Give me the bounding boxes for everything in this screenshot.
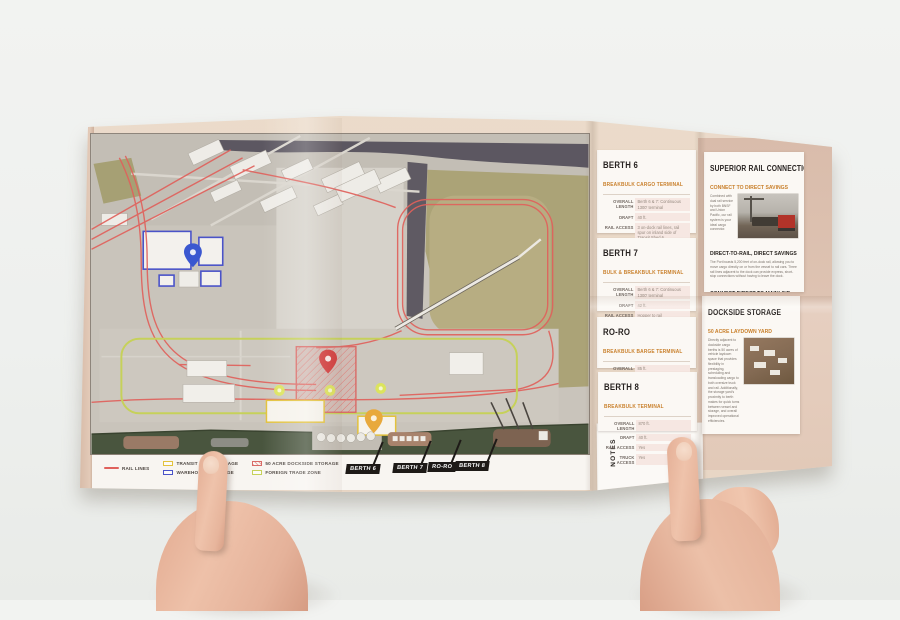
outline-box-swatch: [163, 470, 173, 475]
flag-berth6: BERTH 6: [345, 464, 380, 474]
spec-label: DRAFT: [604, 434, 634, 442]
panel-subtitle: CONNECT TO DIRECT SAVINGS: [710, 185, 788, 191]
spec-value: 870 ft.: [636, 420, 691, 431]
spec-label: RAIL ACCESS: [604, 444, 634, 452]
berth7-card: BERTH 7 BULK & BREAKBULK TERMINAL OVERAL…: [597, 238, 696, 311]
card-title: RO-RO: [603, 327, 630, 338]
panel-intro-text: Combined with dual rail service by both …: [710, 194, 734, 238]
outline-box-swatch: [252, 470, 262, 475]
right-thumbnail: [676, 442, 692, 461]
card-subtitle: BREAKBULK BARGE TERMINAL: [603, 349, 682, 355]
dockside-storage-card: DOCKSIDE STORAGE 50 ACRE LAYDOWN YARD Di…: [702, 296, 800, 434]
spec-value: 42 ft.: [635, 301, 690, 309]
card-subtitle: BULK & BREAKBULK TERMINAL: [603, 270, 683, 276]
outline-box-swatch: [163, 461, 173, 466]
hatched-box-swatch: [252, 461, 262, 466]
section-heading: CONNECT DIRECT TO MAINLINE: [710, 291, 790, 292]
spec-value: Berth 6 & 7: Continuous 1300' terminal: [635, 198, 690, 211]
spec-value: 40 ft.: [635, 213, 690, 221]
card-title: BERTH 6: [603, 160, 638, 171]
flag-roro: RO-RO: [427, 462, 457, 472]
card-title: BERTH 8: [604, 382, 639, 393]
train-at-dock-photo: [738, 194, 798, 238]
section-body: The Port boasts 5,200 feet of on-dock ra…: [710, 260, 798, 279]
left-thumbnail: [203, 456, 219, 474]
spec-label: TRUCK ACCESS: [604, 454, 634, 465]
laydown-yard-aerial-photo: [744, 338, 794, 384]
panel-intro-text: Directly adjacent to dockside cargo bert…: [708, 338, 740, 424]
card-subtitle: BREAKBULK CARGO TERMINAL: [603, 182, 683, 188]
rail-connections-card: SUPERIOR RAIL CONNECTIONS CONNECT TO DIR…: [704, 152, 804, 292]
card-subtitle: BREAKBULK TERMINAL: [604, 404, 664, 410]
legend-item-dockside-storage: 50 ACRE DOCKSIDE STORAGE: [252, 461, 338, 466]
port-terminal-satellite-map: [90, 133, 590, 455]
legend-label: RAIL LINES: [122, 466, 149, 471]
legend-item-foreign-trade-zone: FOREIGN TRADE ZONE: [252, 470, 338, 475]
legend-item-rail-lines: RAIL LINES: [104, 466, 149, 471]
berth8-card: BERTH 8 BREAKBULK TERMINAL OVERALL LENGT…: [598, 372, 697, 431]
section-heading: DIRECT-TO-RAIL, DIRECT SAVINGS: [710, 251, 797, 257]
panel-title: SUPERIOR RAIL CONNECTIONS: [710, 164, 804, 173]
card-title: BERTH 7: [603, 248, 638, 259]
map-legend-strip: RAIL LINES TRANSIT SHED STORAGE WAREHOUS…: [92, 455, 590, 490]
roro-card: RO-RO BREAKBULK BARGE TERMINAL OVERALL L…: [597, 317, 696, 368]
rail-line-swatch: [104, 467, 119, 469]
flag-berth7: BERTH 7: [392, 463, 427, 473]
legend-label: 50 ACRE DOCKSIDE STORAGE: [265, 461, 338, 466]
spec-label: DRAFT: [603, 213, 633, 221]
panel-subtitle: 50 ACRE LAYDOWN YARD: [708, 329, 772, 335]
spec-value: Berth 6 & 7: Continuous 1300' terminal: [635, 286, 690, 299]
spec-label: OVERALL LENGTH: [603, 198, 633, 211]
flag-berth8: BERTH 8: [454, 461, 489, 471]
berth6-card: BERTH 6 BREAKBULK CARGO TERMINAL OVERALL…: [597, 150, 696, 233]
spec-label: OVERALL LENGTH: [604, 420, 634, 431]
panel-title: DOCKSIDE STORAGE: [708, 308, 781, 317]
legend-label: FOREIGN TRADE ZONE: [265, 470, 321, 475]
spec-label: DRAFT: [603, 301, 633, 309]
spec-label: OVERALL LENGTH: [603, 286, 633, 299]
